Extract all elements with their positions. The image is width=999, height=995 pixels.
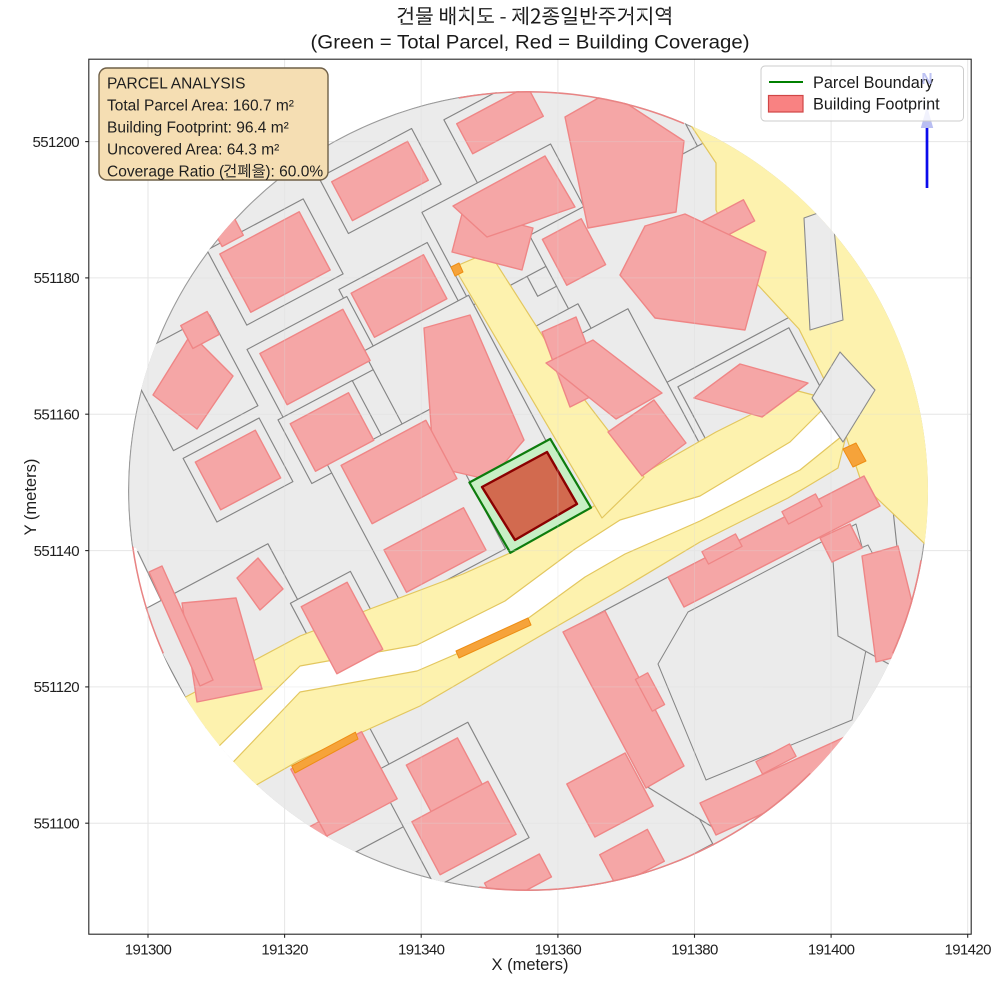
svg-text:Coverage Ratio (: Coverage Ratio ( bbox=[107, 164, 225, 181]
svg-text:N: N bbox=[921, 71, 932, 88]
svg-text:X (meters): X (meters) bbox=[491, 956, 568, 974]
svg-text:): 60.0%: ): 60.0% bbox=[265, 164, 323, 181]
svg-text:(Green = Total Parcel, Red = B: (Green = Total Parcel, Red = Building Co… bbox=[311, 32, 750, 54]
svg-text:191340: 191340 bbox=[398, 942, 445, 959]
svg-text:551200: 551200 bbox=[33, 134, 80, 151]
svg-text:191320: 191320 bbox=[261, 942, 308, 959]
svg-text:Building Footprint: Building Footprint bbox=[813, 96, 940, 114]
svg-text:191380: 191380 bbox=[671, 942, 718, 959]
svg-text:PARCEL ANALYSIS: PARCEL ANALYSIS bbox=[107, 76, 245, 93]
svg-text:551120: 551120 bbox=[34, 679, 80, 696]
svg-text:551160: 551160 bbox=[34, 406, 80, 423]
svg-text:Total Parcel Area: 160.7 m²: Total Parcel Area: 160.7 m² bbox=[107, 98, 294, 115]
svg-text:551180: 551180 bbox=[34, 270, 80, 287]
svg-text:Parcel Boundary: Parcel Boundary bbox=[813, 74, 934, 92]
svg-text:551140: 551140 bbox=[34, 543, 80, 560]
svg-text:191400: 191400 bbox=[808, 942, 855, 959]
svg-text:Y (meters): Y (meters) bbox=[22, 459, 40, 536]
svg-text:Uncovered Area: 64.3 m²: Uncovered Area: 64.3 m² bbox=[107, 142, 279, 159]
svg-text:191420: 191420 bbox=[944, 942, 991, 959]
svg-text:191300: 191300 bbox=[125, 942, 172, 959]
svg-text:551100: 551100 bbox=[34, 815, 80, 832]
svg-text:Building Footprint: 96.4 m²: Building Footprint: 96.4 m² bbox=[107, 120, 289, 137]
